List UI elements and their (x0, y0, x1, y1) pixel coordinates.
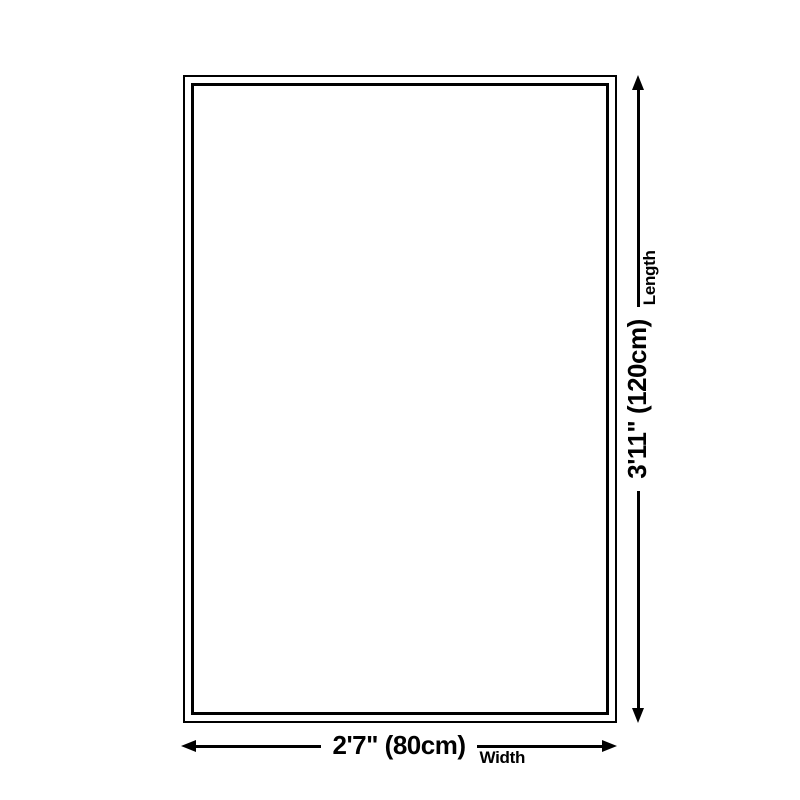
size-diagram: 3'11" (120cm) Length 2'7" (80cm) Width (0, 0, 800, 800)
width-dimension-row: 2'7" (80cm) Width (181, 716, 617, 776)
width-arrow-right-segment: Width (477, 740, 617, 752)
arrow-down-icon (632, 708, 644, 723)
rug-outline-outer (183, 75, 617, 723)
width-label: Width (479, 749, 525, 768)
length-value: 3'11" (120cm) (623, 307, 653, 490)
length-arrow-line (637, 491, 640, 708)
rug-outline-inner (191, 83, 609, 715)
width-arrow-line (196, 745, 321, 748)
length-label: Length (641, 250, 660, 305)
width-arrow-left-segment (181, 740, 321, 752)
width-value: 2'7" (80cm) (321, 731, 478, 761)
width-dimension: 2'7" (80cm) Width (181, 716, 617, 776)
arrow-up-icon (632, 75, 644, 90)
length-arrow-upper-segment: Length (632, 75, 644, 307)
length-arrow-lower-segment (632, 491, 644, 723)
arrow-right-icon (602, 740, 617, 752)
length-dimension-row: 3'11" (120cm) Length (608, 75, 668, 723)
length-dimension: 3'11" (120cm) Length (608, 75, 668, 723)
arrow-left-icon (181, 740, 196, 752)
